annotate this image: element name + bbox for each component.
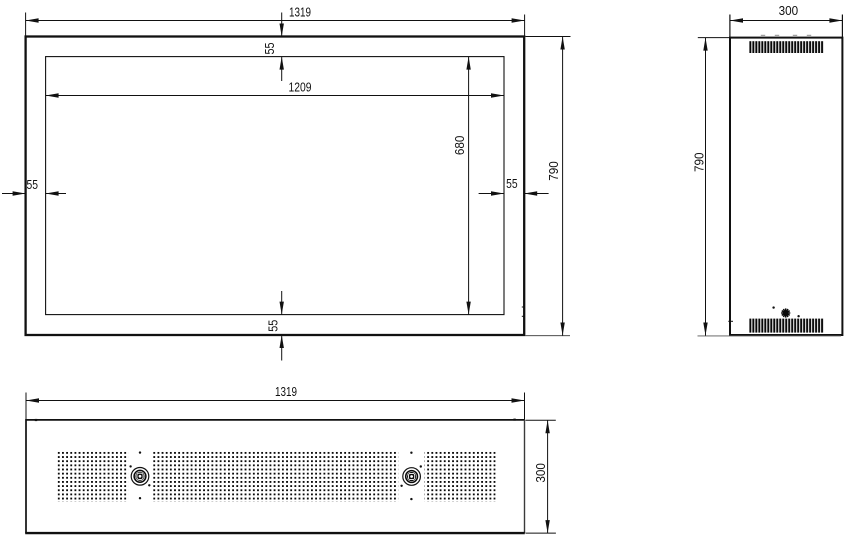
- svg-text:300: 300: [533, 463, 548, 483]
- svg-text:300: 300: [779, 3, 799, 18]
- svg-text:55: 55: [262, 43, 277, 55]
- svg-text:790: 790: [691, 153, 706, 173]
- svg-text:55: 55: [27, 177, 39, 192]
- svg-text:1319: 1319: [275, 384, 297, 399]
- svg-text:1319: 1319: [289, 4, 311, 19]
- svg-text:680: 680: [452, 136, 467, 156]
- svg-text:55: 55: [266, 320, 281, 332]
- svg-text:55: 55: [506, 176, 518, 191]
- svg-text:790: 790: [546, 161, 561, 181]
- svg-text:1209: 1209: [289, 80, 312, 95]
